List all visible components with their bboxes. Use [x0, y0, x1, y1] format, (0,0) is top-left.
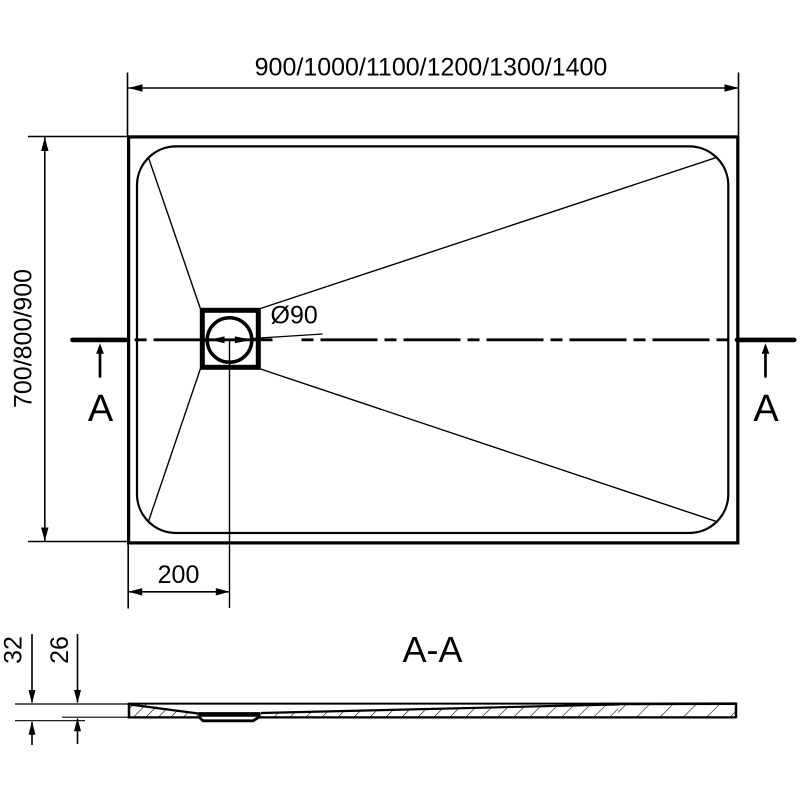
svg-text:A: A	[753, 388, 779, 430]
svg-text:700/800/900: 700/800/900	[10, 269, 38, 408]
svg-text:Ø90: Ø90	[271, 302, 318, 330]
svg-text:26: 26	[46, 636, 74, 664]
svg-text:A-A: A-A	[402, 629, 462, 670]
svg-text:A: A	[88, 388, 114, 430]
svg-text:900/1000/1100/1200/1300/1400: 900/1000/1100/1200/1300/1400	[255, 54, 608, 82]
svg-text:32: 32	[0, 636, 28, 664]
svg-text:200: 200	[158, 561, 200, 589]
